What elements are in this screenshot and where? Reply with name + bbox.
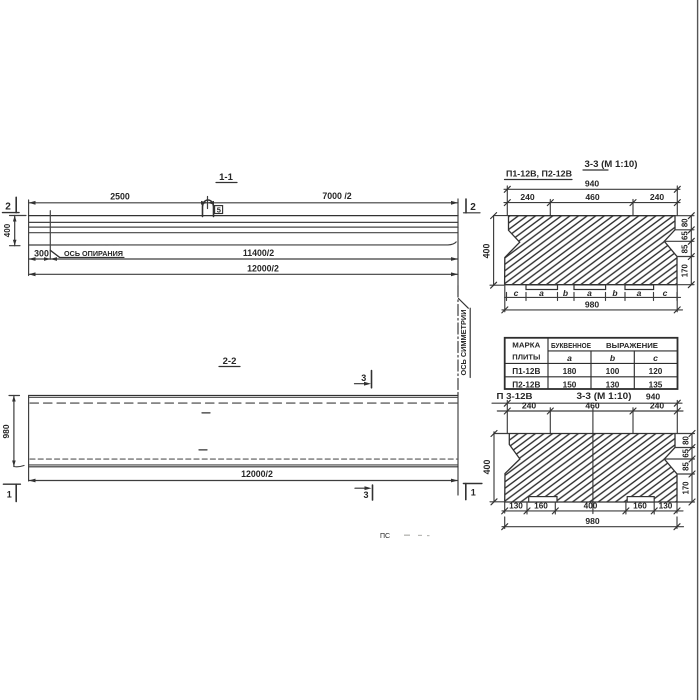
svg-text:3-3 (М 1:10): 3-3 (М 1:10) <box>585 159 638 169</box>
svg-text:300: 300 <box>34 249 49 259</box>
svg-text:980: 980 <box>1 424 11 438</box>
svg-text:135: 135 <box>649 380 663 389</box>
svg-text:b: b <box>610 353 615 363</box>
svg-text:65: 65 <box>681 231 690 240</box>
svg-text:240: 240 <box>520 192 535 202</box>
svg-text:a: a <box>587 288 592 298</box>
svg-text:2: 2 <box>5 202 11 213</box>
svg-text:180: 180 <box>563 367 577 376</box>
svg-text:П1-12В: П1-12В <box>512 367 540 376</box>
svg-text:1-1: 1-1 <box>219 172 233 183</box>
svg-text:12000/2: 12000/2 <box>247 263 279 273</box>
svg-text:ОСЬ ОПИРАНИЯ: ОСЬ ОПИРАНИЯ <box>64 249 123 258</box>
svg-text:БУКВЕННОЕ: БУКВЕННОЕ <box>551 341 591 350</box>
svg-text:П1-12В, П2-12В: П1-12В, П2-12В <box>506 169 572 179</box>
svg-text:2-2: 2-2 <box>223 356 237 367</box>
svg-text:3: 3 <box>363 490 368 500</box>
svg-text:130: 130 <box>606 380 620 389</box>
svg-text:b: b <box>563 288 568 298</box>
svg-text:МАРКА: МАРКА <box>512 341 541 350</box>
svg-text:240: 240 <box>650 192 665 202</box>
svg-text:3: 3 <box>361 373 366 383</box>
svg-text:11400/2: 11400/2 <box>243 248 274 258</box>
svg-text:400: 400 <box>482 244 492 259</box>
svg-text:ВЫРАЖЕНИЕ: ВЫРАЖЕНИЕ <box>606 341 658 350</box>
svg-text:П2-12В: П2-12В <box>512 380 540 389</box>
svg-text:130: 130 <box>509 502 523 511</box>
svg-text:100: 100 <box>606 367 620 376</box>
svg-text:170: 170 <box>681 481 690 495</box>
svg-text:240: 240 <box>522 400 537 410</box>
svg-text:b: b <box>612 288 617 298</box>
svg-text:12000/2: 12000/2 <box>241 469 273 479</box>
svg-text:1: 1 <box>7 490 12 500</box>
svg-text:400: 400 <box>584 502 598 511</box>
svg-text:a: a <box>567 353 572 363</box>
svg-text:ОСЬ СИММЕТРИИ: ОСЬ СИММЕТРИИ <box>459 310 468 376</box>
svg-text:400: 400 <box>482 460 492 475</box>
svg-text:2: 2 <box>470 202 476 213</box>
svg-text:400: 400 <box>3 223 12 237</box>
svg-text:1: 1 <box>471 488 476 498</box>
svg-text:c: c <box>663 288 668 298</box>
svg-text:2500: 2500 <box>110 192 130 202</box>
svg-text:980: 980 <box>585 516 600 526</box>
svg-text:65: 65 <box>681 448 690 457</box>
svg-text:a: a <box>539 288 544 298</box>
svg-text:130: 130 <box>659 502 673 511</box>
svg-text:160: 160 <box>633 502 647 511</box>
svg-text:460: 460 <box>585 192 600 202</box>
svg-text:80: 80 <box>681 436 690 445</box>
svg-text:160: 160 <box>534 502 548 511</box>
svg-text:980: 980 <box>585 299 600 309</box>
svg-text:85: 85 <box>681 462 690 471</box>
svg-text:940: 940 <box>585 178 600 188</box>
svg-text:c: c <box>514 288 519 298</box>
svg-text:5: 5 <box>217 205 221 214</box>
svg-text:150: 150 <box>563 380 577 389</box>
svg-text:c: c <box>653 353 658 363</box>
svg-text:170: 170 <box>681 264 690 278</box>
svg-text:ПС: ПС <box>380 533 390 540</box>
svg-text:120: 120 <box>649 367 663 376</box>
svg-text:ПЛИТЫ: ПЛИТЫ <box>512 353 540 362</box>
svg-text:a: a <box>637 288 642 298</box>
svg-text:7000 /2: 7000 /2 <box>322 191 351 201</box>
svg-text:80: 80 <box>681 218 690 227</box>
svg-text:85: 85 <box>681 244 690 253</box>
svg-text:240: 240 <box>650 400 665 410</box>
